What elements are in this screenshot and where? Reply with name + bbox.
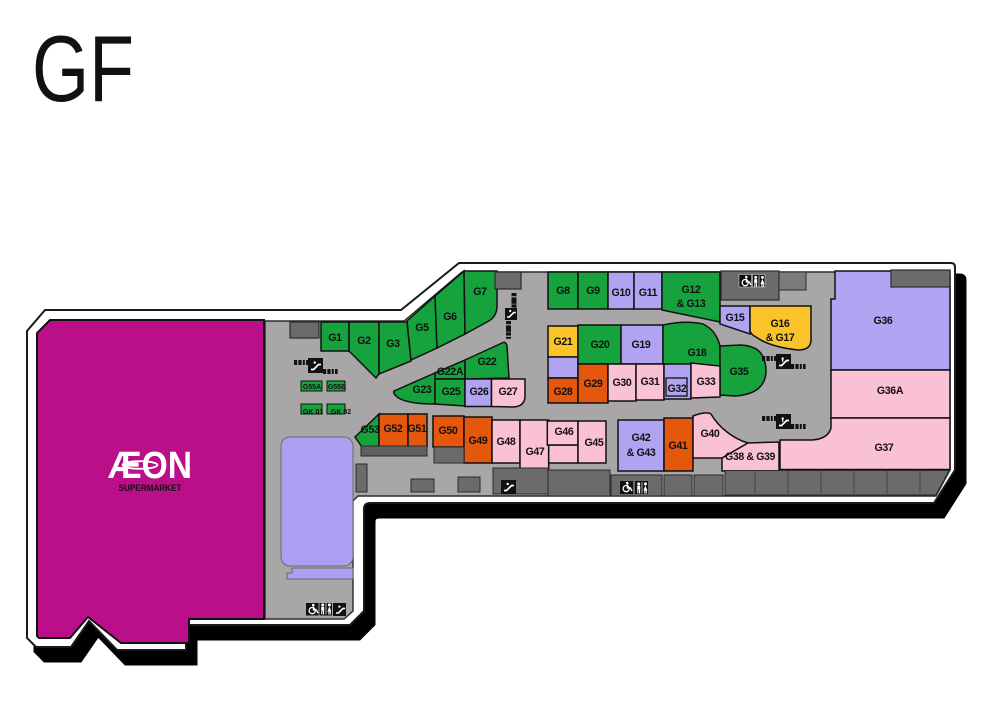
svg-text:& G13: & G13 xyxy=(677,298,706,310)
svg-text:G15: G15 xyxy=(726,312,745,324)
svg-text:G28: G28 xyxy=(554,386,573,398)
svg-text:G25: G25 xyxy=(442,386,461,398)
svg-text:G45: G45 xyxy=(585,437,604,449)
svg-text:G55A: G55A xyxy=(303,384,321,391)
svg-text:G52: G52 xyxy=(384,423,403,435)
svg-text:G22A: G22A xyxy=(437,366,464,378)
svg-text:G18: G18 xyxy=(688,347,707,359)
svg-text:G31: G31 xyxy=(641,376,660,388)
svg-text:ÆON: ÆON xyxy=(108,445,192,487)
svg-text:G3: G3 xyxy=(386,338,400,350)
svg-text:G19: G19 xyxy=(632,339,651,351)
svg-text:G40: G40 xyxy=(701,428,720,440)
svg-text:G23: G23 xyxy=(413,384,432,396)
svg-text:G55B: G55B xyxy=(328,384,346,391)
svg-text:G41: G41 xyxy=(669,440,688,452)
svg-text:G35: G35 xyxy=(730,366,749,378)
svg-text:G32: G32 xyxy=(668,383,687,395)
svg-text:G30: G30 xyxy=(613,377,632,389)
svg-text:& G43: & G43 xyxy=(627,447,656,459)
svg-text:G51: G51 xyxy=(408,423,427,435)
svg-text:GK 01: GK 01 xyxy=(303,409,323,416)
svg-text:G42: G42 xyxy=(632,432,651,444)
svg-text:GK 02: GK 02 xyxy=(331,409,351,416)
svg-text:G29: G29 xyxy=(584,378,603,390)
svg-text:G6: G6 xyxy=(443,311,457,323)
svg-text:G33: G33 xyxy=(697,376,716,388)
svg-text:G53: G53 xyxy=(361,424,380,436)
svg-text:G27: G27 xyxy=(499,386,518,398)
svg-text:G20: G20 xyxy=(591,339,610,351)
svg-text:G49: G49 xyxy=(469,435,488,447)
svg-text:G1: G1 xyxy=(328,332,342,344)
svg-text:G37: G37 xyxy=(875,442,894,454)
svg-text:G47: G47 xyxy=(526,446,545,458)
svg-text:G8: G8 xyxy=(556,285,570,297)
svg-text:G22: G22 xyxy=(478,356,497,368)
svg-text:G9: G9 xyxy=(586,285,600,297)
svg-text:G48: G48 xyxy=(497,436,516,448)
svg-text:G12: G12 xyxy=(682,284,701,296)
svg-text:G5: G5 xyxy=(415,322,429,334)
svg-text:G10: G10 xyxy=(612,287,631,299)
svg-text:G38 & G39: G38 & G39 xyxy=(725,451,775,463)
svg-text:G16: G16 xyxy=(771,318,790,330)
svg-text:GF: GF xyxy=(32,16,134,121)
svg-text:G7: G7 xyxy=(473,286,487,298)
svg-text:G21: G21 xyxy=(554,336,573,348)
svg-text:G36A: G36A xyxy=(877,385,904,397)
svg-text:G2: G2 xyxy=(357,335,371,347)
svg-text:& G17: & G17 xyxy=(766,332,795,344)
svg-text:G46: G46 xyxy=(555,426,574,438)
svg-text:SUPERMARKET: SUPERMARKET xyxy=(119,483,182,493)
svg-text:G26: G26 xyxy=(470,386,489,398)
svg-text:G11: G11 xyxy=(639,287,658,299)
svg-text:G36: G36 xyxy=(874,315,893,327)
svg-text:G50: G50 xyxy=(439,425,458,437)
